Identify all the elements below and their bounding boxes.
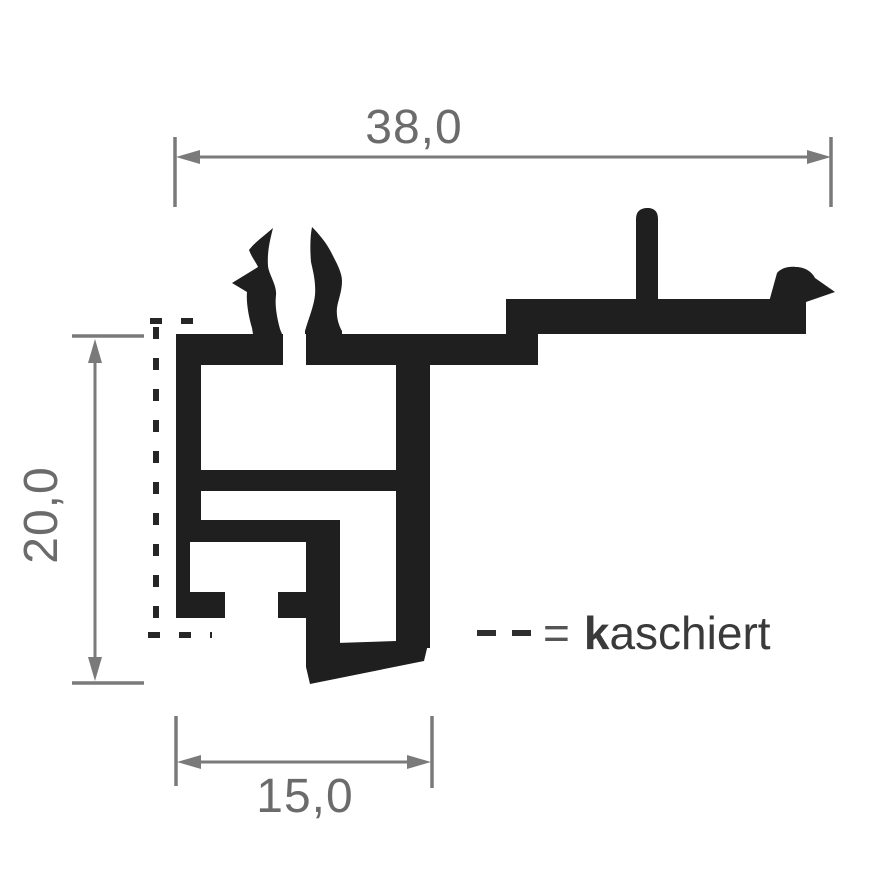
technical-drawing: 38,0 20,0 15,0 =kaschiert <box>0 0 878 874</box>
arm-right-segment <box>306 334 538 365</box>
spout-bottom <box>306 640 429 684</box>
dimension-top-width: 38,0 <box>175 101 831 207</box>
spout-tab <box>278 592 310 618</box>
arrowhead-right-icon <box>807 150 831 164</box>
legend: =kaschiert <box>477 607 771 659</box>
legend-equals: = <box>543 607 570 659</box>
dimension-left-height: 20,0 <box>15 336 144 683</box>
legend-text: =kaschiert <box>543 607 771 659</box>
left-wall-foot <box>176 592 225 618</box>
drawing-canvas: 38,0 20,0 15,0 =kaschiert <box>0 0 878 874</box>
arrowhead-right-icon <box>407 755 431 769</box>
left-prong <box>232 228 282 334</box>
dimension-label-top: 38,0 <box>365 101 462 154</box>
dimension-bottom-width: 15,0 <box>176 716 432 823</box>
end-hook <box>769 267 835 334</box>
arrowhead-left-icon <box>176 150 200 164</box>
arrowhead-down-icon <box>88 657 102 681</box>
central-web <box>396 365 430 648</box>
spout-inner-wall <box>306 520 340 646</box>
right-prong <box>305 227 342 334</box>
left-wall-upper <box>176 334 201 542</box>
vertical-stud <box>636 208 658 310</box>
arrowhead-left-icon <box>177 755 201 769</box>
dimension-label-left: 20,0 <box>15 466 68 563</box>
legend-term-rest: aschiert <box>609 607 770 659</box>
dimension-label-bottom: 15,0 <box>256 770 353 823</box>
legend-term-bold: k <box>584 607 610 659</box>
middle-shelf <box>200 470 430 491</box>
arrowhead-up-icon <box>88 339 102 363</box>
